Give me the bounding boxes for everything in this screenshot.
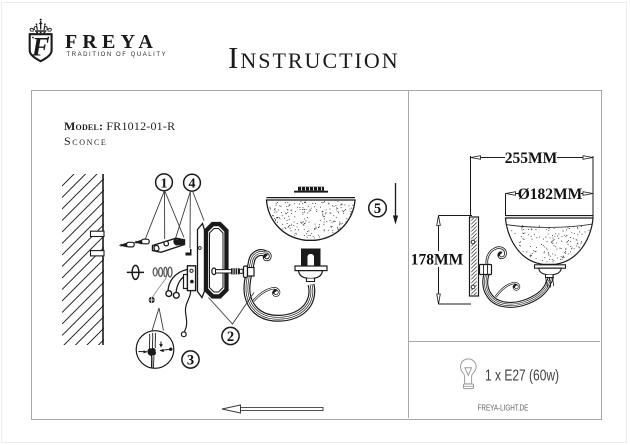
svg-text:1 x E27 (60w): 1 x E27 (60w)	[485, 366, 559, 384]
svg-text:3: 3	[187, 353, 194, 369]
svg-text:FREYA-LIGHT.DE: FREYA-LIGHT.DE	[478, 403, 529, 413]
svg-text:4: 4	[189, 177, 196, 192]
svg-text:178MM: 178MM	[411, 252, 464, 269]
svg-text:2: 2	[227, 329, 234, 345]
svg-text:Ø182MM: Ø182MM	[518, 186, 583, 203]
svg-text:1: 1	[161, 176, 168, 191]
svg-text:255MM: 255MM	[505, 150, 558, 167]
svg-text:5: 5	[374, 201, 381, 217]
